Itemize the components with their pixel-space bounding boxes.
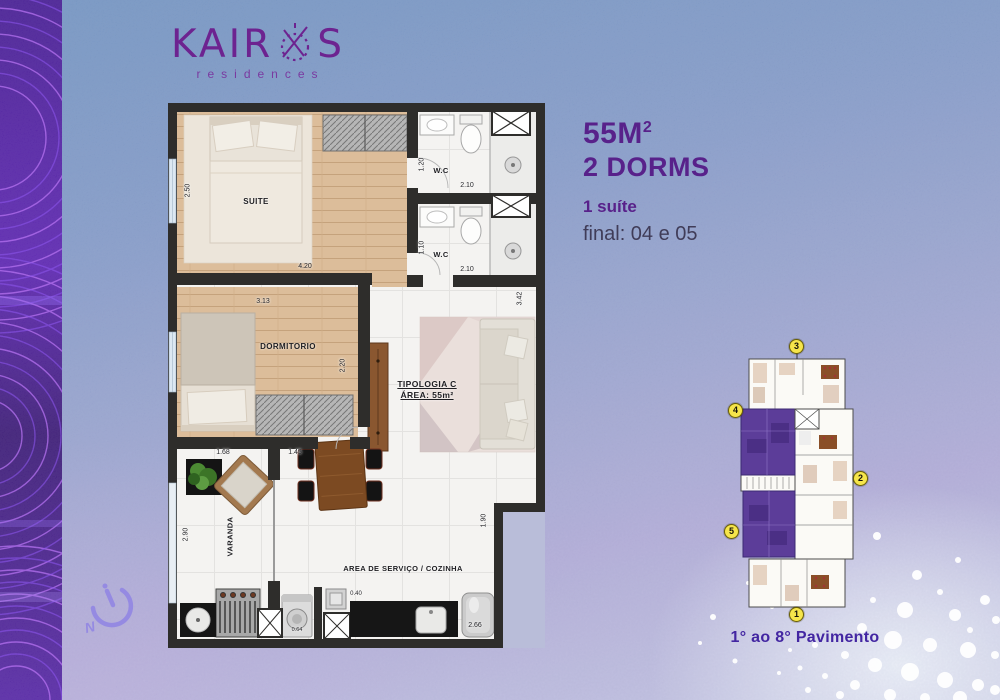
dim-suite-width: 4.20 [290,263,320,270]
unit-badge-1: 1 [789,607,804,622]
keyplan-elevator [795,409,819,429]
dim-wc-bottom-depth: 1.10 [419,236,426,260]
varanda-grill [216,589,260,637]
unit-badge-3: 3 [789,339,804,354]
fridge [462,593,494,637]
logo-wordmark: KAIR S [160,22,356,66]
dim-varanda-width: 1.68 [208,449,238,456]
dim-wc-top-depth: 1.20 [419,153,426,177]
unit-specs: 55M2 2 DORMS 1 suíte final: 04 e 05 [583,117,710,246]
dim-shaft-width: 0.40 [344,591,368,597]
apartment-floorplan: SUITE W.C W.C DORMITORIO VARANDA AREA DE… [168,103,545,648]
varanda-sink-counter [180,603,216,637]
dim-dorm-width: 3.13 [248,298,278,305]
shaft-x-right [324,613,350,639]
wc-bottom-label: W.C [426,250,456,259]
unit-badge-4: 4 [728,403,743,418]
dim-suite-depth: 2.50 [185,179,192,203]
final-units-spec: final: 04 e 05 [583,223,710,246]
suite-spec: 1 suíte [583,197,710,217]
kitchen-counter [350,601,458,637]
dining-table [315,439,368,510]
suite-label: SUITE [228,197,284,206]
unit-badge-2: 2 [853,471,868,486]
dim-living-depth: 3.42 [517,287,524,311]
logo-text-left: KAIR [171,25,273,64]
dim-wc-bottom-width: 2.10 [452,266,482,273]
varanda-label: VARANDA [226,507,235,567]
dormitorio-label: DORMITORIO [240,342,336,351]
kairos-logo: KAIR S residences [160,22,356,81]
dim-service-width: 2.66 [460,622,490,629]
area-superscript: 2 [643,119,652,136]
dim-washer-width: 0.64 [280,627,314,633]
service-label: AREA DE SERVIÇO / COZINHA [328,564,478,573]
shaft-box-small [326,589,346,609]
typology-title: TIPOLOGIA C [380,379,474,389]
dim-service-depth: 1.90 [481,509,488,533]
area-spec: 55M2 [583,117,710,151]
suite-wardrobe [323,115,407,151]
decorative-left-band [0,0,62,700]
dim-dorm-depth: 2.20 [340,354,347,378]
dim-varanda-depth: 2.90 [183,523,190,547]
brochure-page: KAIR S residences 55M2 2 DORMS 1 suíte f… [0,0,1000,700]
dim-wc-top-width: 2.10 [452,182,482,189]
north-arrow-icon: N [80,578,144,642]
dorm-single-bed [181,313,255,431]
wc-top-label: W.C [426,166,456,175]
logo-text-right: S [317,25,345,64]
typology-area: ÁREA: 55m² [380,390,474,400]
logo-subtitle: residences [160,67,356,81]
floors-caption: 1° ao 8° Pavimento [705,629,905,647]
dorms-spec: 2 DORMS [583,152,710,183]
dim-dining-width: 1.45 [280,449,310,456]
living-sofa [480,319,535,449]
shaft-x-left [258,609,282,637]
north-label: N [83,618,98,636]
unit-badge-5: 5 [724,524,739,539]
plan-notch [503,512,545,648]
clock-o-icon [274,22,316,66]
dorm-wardrobe [256,395,353,435]
suite-double-bed [210,117,302,243]
